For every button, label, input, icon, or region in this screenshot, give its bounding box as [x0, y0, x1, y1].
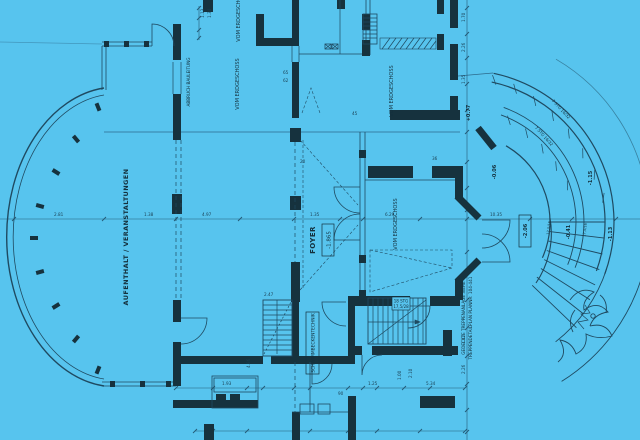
terrace-arcs	[492, 59, 640, 381]
bay-window-apse	[7, 88, 104, 386]
dim-text: 5.34	[426, 381, 436, 386]
window-walls	[102, 0, 455, 387]
level-walk-top: -1.15	[588, 170, 594, 185]
level-fan-out: -1.13	[608, 226, 614, 241]
blueprint-sheet: AUFENTHALT / VERANSTALTUNGEN FOYER -1.86…	[0, 0, 640, 440]
arc-stair-label-1: 7 STG 16/32	[551, 98, 572, 120]
dim-text: 2.47	[264, 292, 274, 297]
dim-text: 36	[432, 156, 438, 161]
dim-text: 2.81	[54, 212, 64, 217]
dim-text: 2.26	[461, 364, 466, 374]
dim-text: 1.13	[200, 8, 205, 18]
dim-text: 4.86	[246, 358, 251, 368]
dim-text: 1.70	[461, 12, 466, 22]
dim-text: 65	[283, 70, 289, 75]
double-door-foyer-right-leaf	[334, 214, 360, 240]
door-bottom-room	[362, 355, 382, 375]
floor-plan-drawing: AUFENTHALT / VERANSTALTUNGEN FOYER -1.86…	[0, 0, 640, 440]
double-door-foyer-left-leaf	[334, 187, 360, 213]
dim-text: 10.35	[490, 212, 502, 217]
level-fan-mid: -0.41	[566, 224, 572, 239]
dim-text: 1.35	[461, 74, 466, 84]
dim-text: 62	[283, 78, 289, 83]
room-label-vom-erdgeschoss-3: VOM ERDGESCHOSS	[389, 65, 395, 116]
note-abbruch: ABBRUCH BAULEITUNG	[186, 57, 191, 106]
room-label-pool-tech: SCHWIMMBECKENTECHNIK	[311, 313, 317, 373]
ornament-plant	[558, 290, 612, 362]
dim-text: 4.97	[202, 212, 212, 217]
level-entry: +0.77	[466, 104, 472, 121]
dim-text: 20	[300, 159, 306, 164]
room-label-vom-erdgeschoss-4: VOM ERDGESCHOSS	[393, 198, 399, 249]
dim-text: 1.93	[222, 381, 232, 386]
door-pooltech	[322, 302, 346, 326]
ramp-hatch	[380, 38, 436, 49]
door-hall-top	[152, 24, 174, 46]
room-label-vom-erdgeschoss-1: VOM ERDGESCHOSS	[236, 0, 242, 42]
note-stair-2: TREPPENDETAILPLAN PLANNR: 104-441	[468, 276, 473, 360]
dimension-lines	[0, 0, 640, 440]
door-hall-bottom	[181, 318, 207, 344]
dim-text: 1.25	[368, 381, 378, 386]
fan-step-label-2: 17,5/16	[582, 222, 588, 237]
dim-text: 1.12	[461, 334, 466, 344]
dim-text: 1.00	[397, 370, 402, 380]
angled-walls	[457, 128, 494, 282]
level-terrace: -2.06	[523, 223, 529, 238]
level-upper: -0.06	[492, 164, 498, 179]
dim-text: 1.34	[207, 8, 212, 18]
dim-text: 1.38	[144, 212, 154, 217]
dim-text: 6.29	[385, 212, 395, 217]
dim-text: 1.35	[310, 212, 320, 217]
dim-text: 45	[352, 111, 358, 116]
dim-text: 2.26	[461, 42, 466, 52]
dim-text: 2.10	[408, 368, 413, 378]
foyer-level: -1.865	[327, 231, 333, 249]
door-wing-south	[408, 306, 430, 328]
room-label-hall: AUFENTHALT / VERANSTALTUNGEN	[122, 169, 130, 306]
dim-text: 90	[338, 391, 344, 396]
stair2-label-line1: 18 STG	[394, 299, 408, 304]
room-label-vom-erdgeschoss-2: VOM ERDGESCHOSS	[235, 58, 241, 109]
stair2-label-line2: 17,5/28	[393, 304, 409, 309]
room-label-foyer: FOYER	[309, 226, 317, 254]
stair-s1	[263, 300, 292, 356]
